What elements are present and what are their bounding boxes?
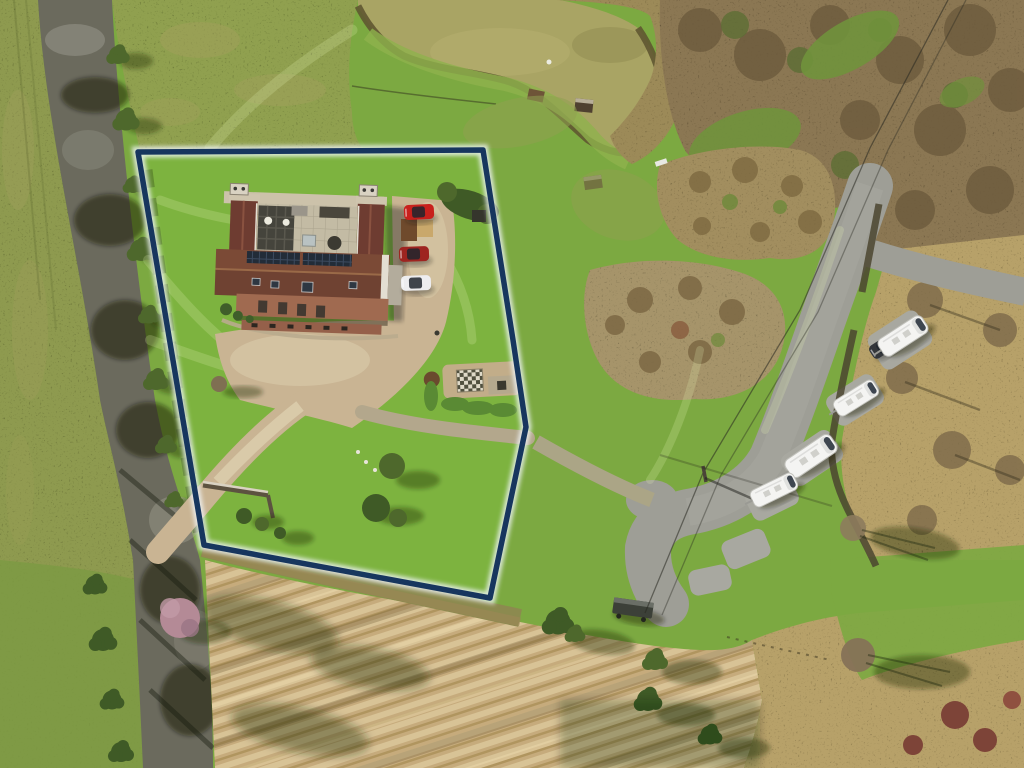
- scrub-patch-upper: [657, 146, 835, 259]
- pond-marker: [547, 60, 552, 65]
- courtyard: [256, 203, 358, 254]
- fishing-hut: [574, 98, 593, 113]
- farmhouse: [213, 180, 407, 336]
- car-1: [404, 204, 438, 226]
- front-roof: [235, 294, 388, 335]
- car-3: [401, 275, 435, 296]
- solar-panels: [247, 251, 300, 265]
- garden-shed: [472, 210, 486, 222]
- garage-roof: [387, 265, 402, 305]
- solar-panels: [303, 253, 352, 267]
- aerial-photograph: [0, 0, 1024, 768]
- car-2: [399, 246, 433, 267]
- scrub-patch-lower: [584, 261, 785, 400]
- aerial-photo-stage: [0, 0, 1024, 768]
